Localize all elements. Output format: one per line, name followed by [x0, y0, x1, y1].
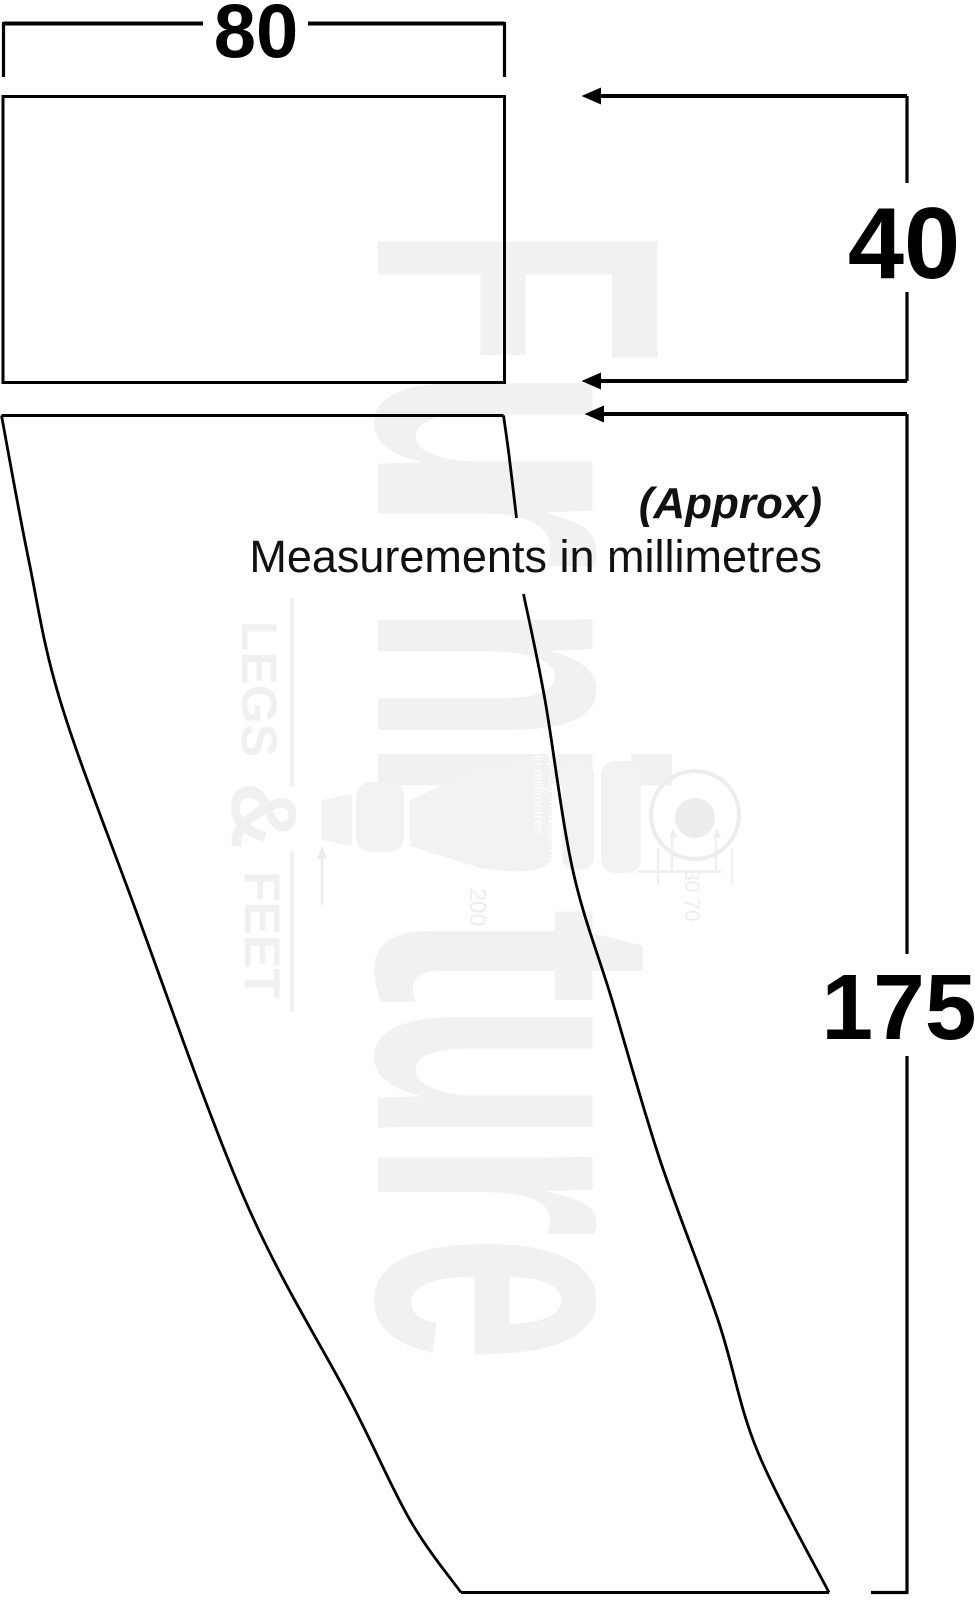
svg-text:in millimetres: in millimetres	[531, 755, 546, 834]
svg-text:&: &	[212, 782, 316, 849]
svg-text:80: 80	[214, 0, 299, 75]
svg-text:Measurements in millimetres: Measurements in millimetres	[249, 531, 822, 582]
svg-text:30 70: 30 70	[680, 869, 703, 922]
svg-text:200: 200	[465, 888, 491, 926]
svg-text:e: e	[292, 1235, 745, 1362]
svg-text:F: F	[292, 226, 745, 366]
svg-text:(Approx): (Approx)	[639, 479, 822, 528]
svg-text:175: 175	[821, 955, 975, 1059]
svg-text:LEGS: LEGS	[231, 621, 287, 757]
svg-text:n: n	[292, 604, 745, 744]
svg-text:u: u	[292, 1003, 745, 1143]
svg-text:r: r	[291, 1140, 745, 1238]
svg-text:t: t	[292, 908, 745, 1005]
svg-text:40: 40	[848, 188, 960, 300]
svg-text:FEET: FEET	[234, 871, 290, 999]
